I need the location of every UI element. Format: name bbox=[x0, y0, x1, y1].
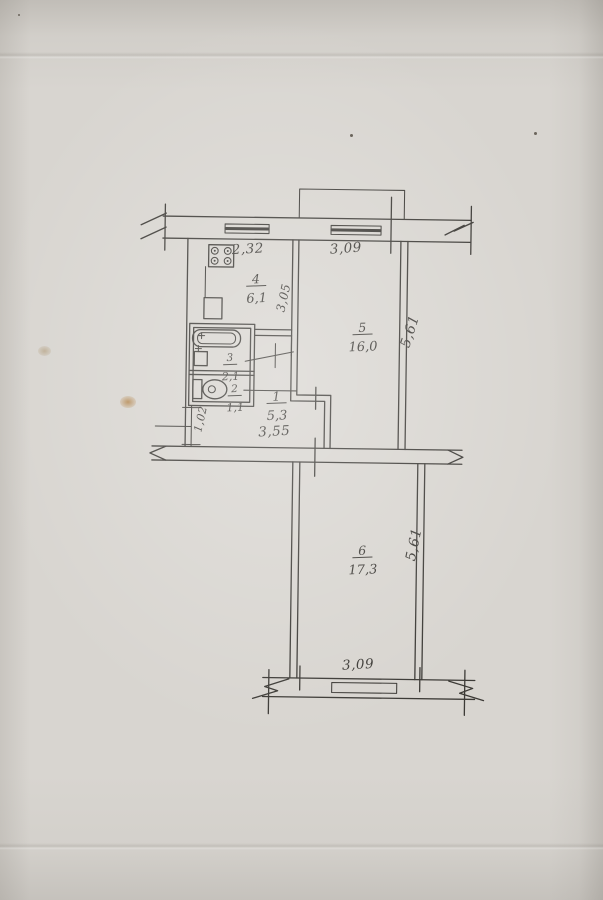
break-symbol-top-left bbox=[141, 213, 166, 239]
room-area: 17,3 bbox=[348, 562, 378, 578]
room-area: 5,3 bbox=[266, 408, 287, 424]
dim-bottom-width: 3,09 bbox=[342, 656, 375, 674]
break-symbol-bottom-right bbox=[449, 681, 484, 700]
room-number: 2 bbox=[227, 384, 242, 397]
wall-kitchen-hall bbox=[255, 329, 292, 336]
room-number: 6 bbox=[352, 544, 372, 559]
balcony-outline bbox=[299, 189, 404, 219]
break-symbol-top-right bbox=[445, 222, 473, 235]
dim-top-left-width: 2,32 bbox=[231, 240, 264, 258]
dimension-tick-top-right-end bbox=[471, 206, 472, 254]
outer-wall-top bbox=[141, 194, 474, 255]
room-label-room6: 6 17,3 bbox=[338, 539, 387, 579]
room-label-kitchen: 4 6,1 bbox=[232, 267, 281, 307]
outer-wall-bottom bbox=[252, 665, 484, 716]
dimension-tick-bottom-right-end bbox=[464, 670, 465, 715]
wall-middle bbox=[150, 436, 464, 478]
stove-icon bbox=[209, 245, 234, 267]
floor-plan: 4 6,1 5 16,0 3 2,1 2 1,1 1 5,3 6 17,3 2,… bbox=[0, 0, 603, 900]
break-symbol-bottom-left bbox=[253, 678, 289, 699]
room-number: 5 bbox=[352, 320, 372, 335]
window-room6-icon bbox=[332, 682, 397, 693]
paper-speck bbox=[350, 134, 353, 137]
break-arrow-middle-right bbox=[448, 450, 463, 464]
dim-hall-width: 3,55 bbox=[258, 423, 291, 441]
dimension-tick-bottom-left-end bbox=[268, 670, 269, 714]
paper-photo: 4 6,1 5 16,0 3 2,1 2 1,1 1 5,3 6 17,3 2,… bbox=[0, 0, 603, 900]
plan-linework bbox=[0, 0, 603, 900]
room-area: 6,1 bbox=[246, 291, 267, 307]
paper-speck bbox=[18, 14, 20, 16]
dim-top-right-width: 3,09 bbox=[329, 239, 362, 257]
bathtub-icon bbox=[192, 329, 240, 347]
vent-shaft-icon bbox=[204, 267, 223, 319]
dimension-tick-top-mid bbox=[391, 197, 392, 253]
room-number: 3 bbox=[222, 353, 237, 366]
wall-left-upper bbox=[185, 238, 188, 446]
paper-speck bbox=[534, 132, 537, 135]
window-living-icon bbox=[331, 225, 381, 235]
room-number: 4 bbox=[246, 272, 266, 287]
dimension-tick-top-left bbox=[165, 204, 166, 250]
room-number: 1 bbox=[266, 389, 286, 404]
room-label-living: 5 16,0 bbox=[338, 316, 387, 356]
break-arrow-middle-left bbox=[150, 446, 166, 460]
dimension-tick-middle bbox=[315, 438, 316, 476]
room-label-hall: 1 5,3 bbox=[252, 385, 301, 425]
room-area: 1,1 bbox=[226, 401, 244, 415]
window-kitchen-icon bbox=[225, 224, 269, 234]
room-area: 16,0 bbox=[348, 339, 378, 355]
